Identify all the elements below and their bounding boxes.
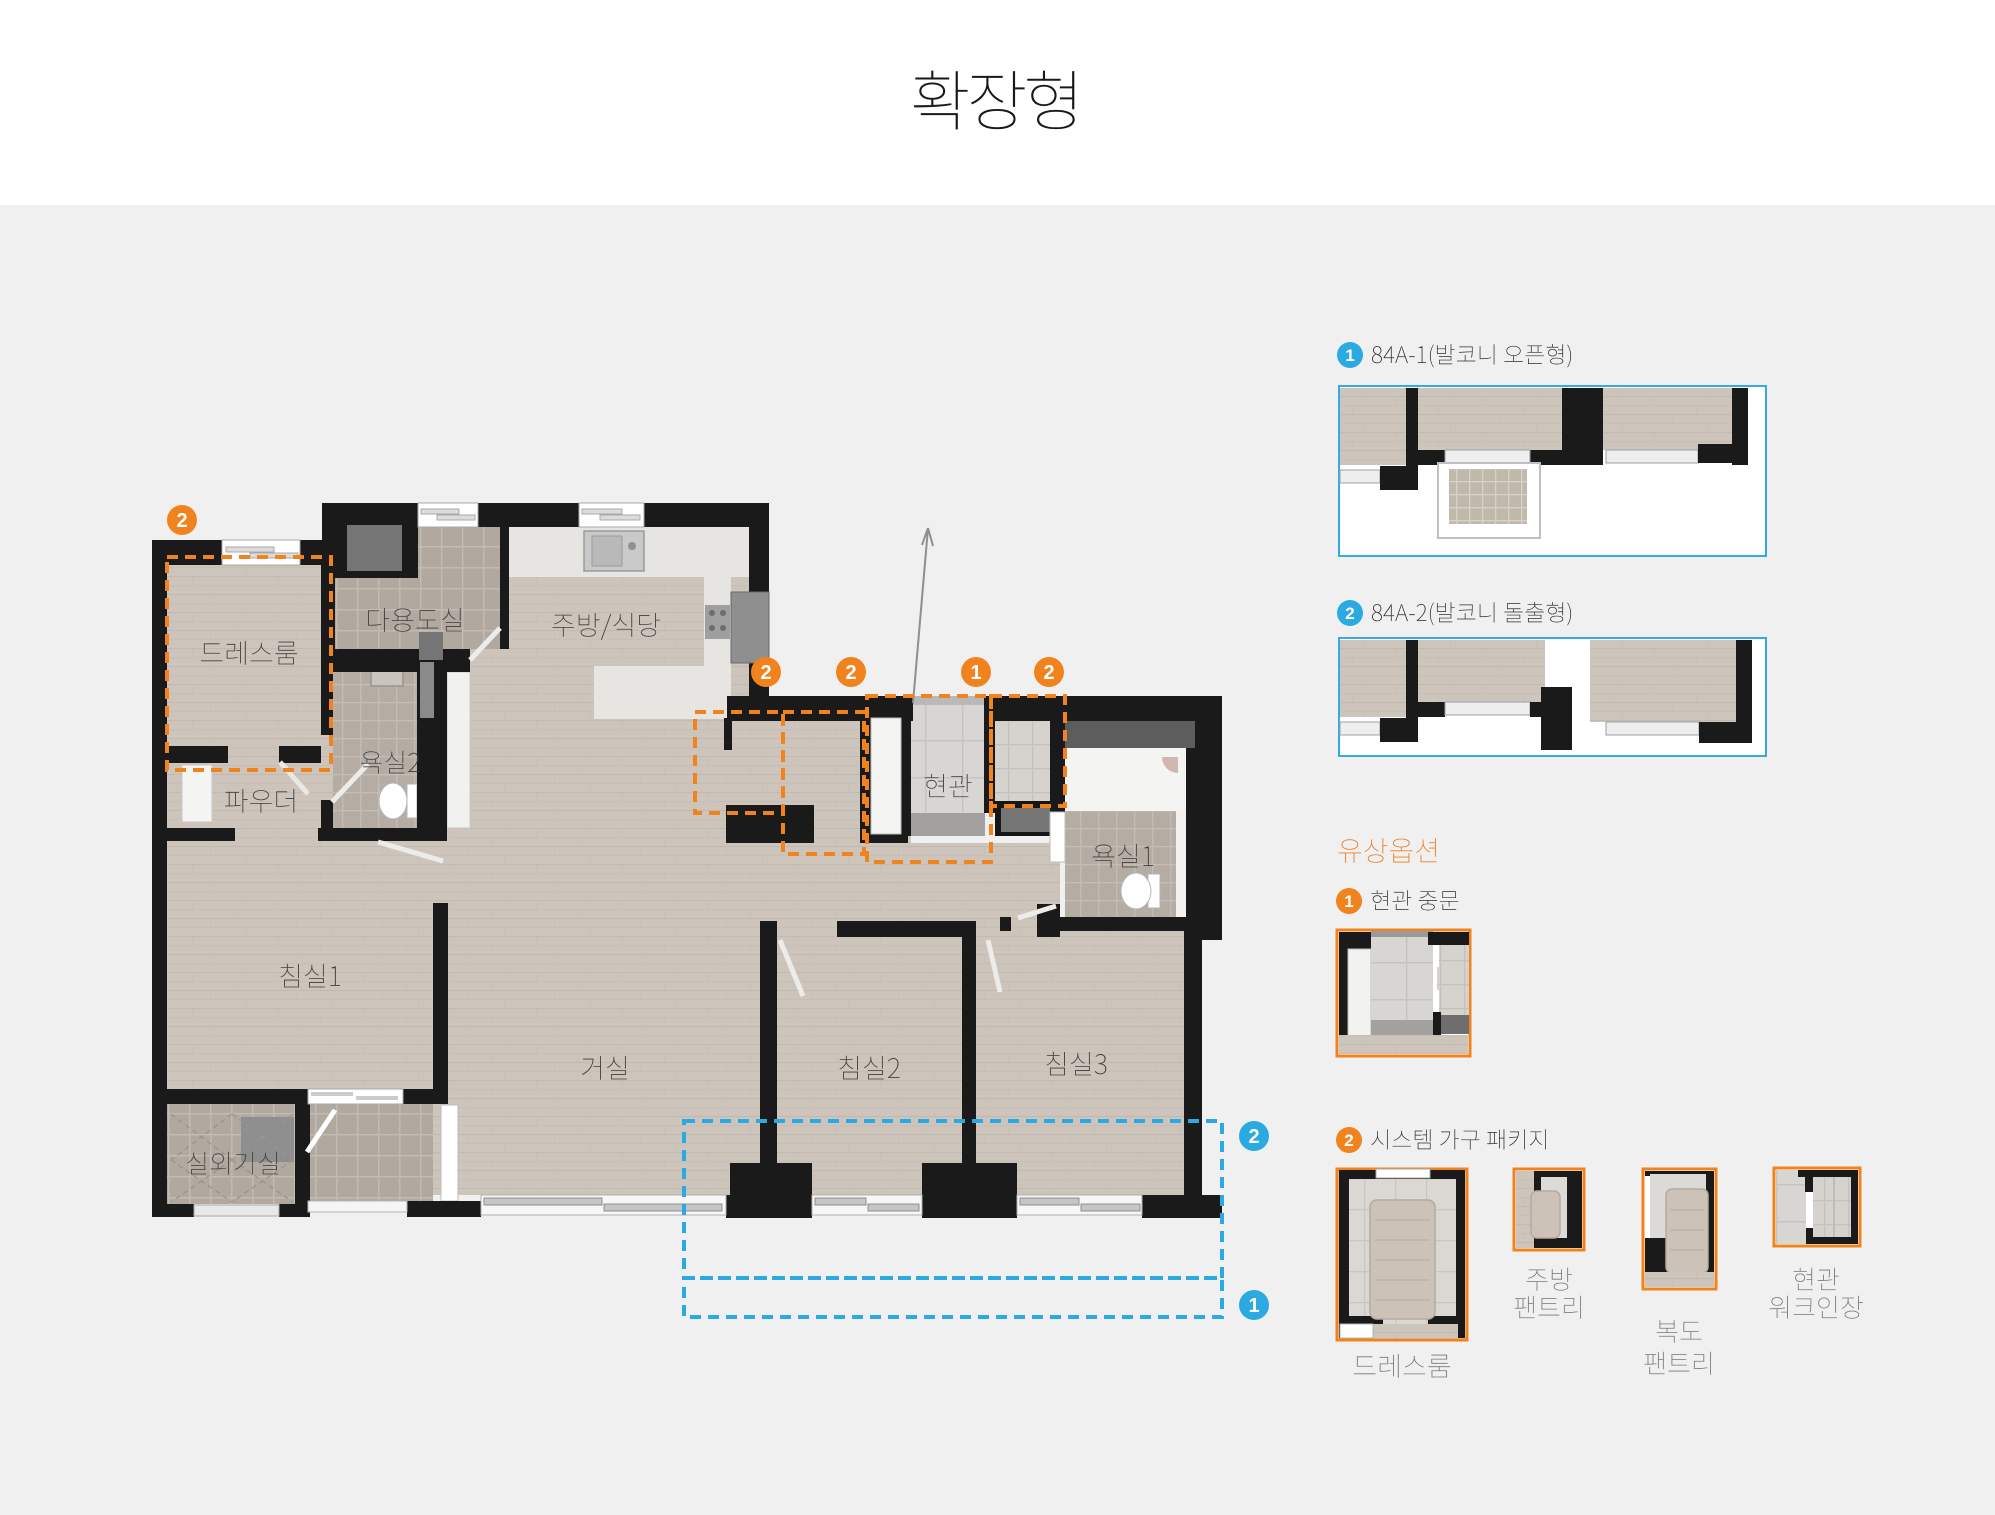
svg-text:1: 1 (970, 662, 981, 684)
svg-text:2: 2 (1345, 604, 1354, 623)
svg-text:2: 2 (1248, 1126, 1259, 1148)
svg-text:2: 2 (1344, 1131, 1353, 1150)
svg-text:1: 1 (1344, 892, 1353, 911)
svg-text:2: 2 (760, 662, 771, 684)
svg-text:1: 1 (1345, 346, 1354, 365)
svg-text:2: 2 (1043, 662, 1054, 684)
svg-text:2: 2 (176, 510, 187, 532)
svg-text:1: 1 (1248, 1295, 1259, 1317)
svg-text:2: 2 (845, 662, 856, 684)
